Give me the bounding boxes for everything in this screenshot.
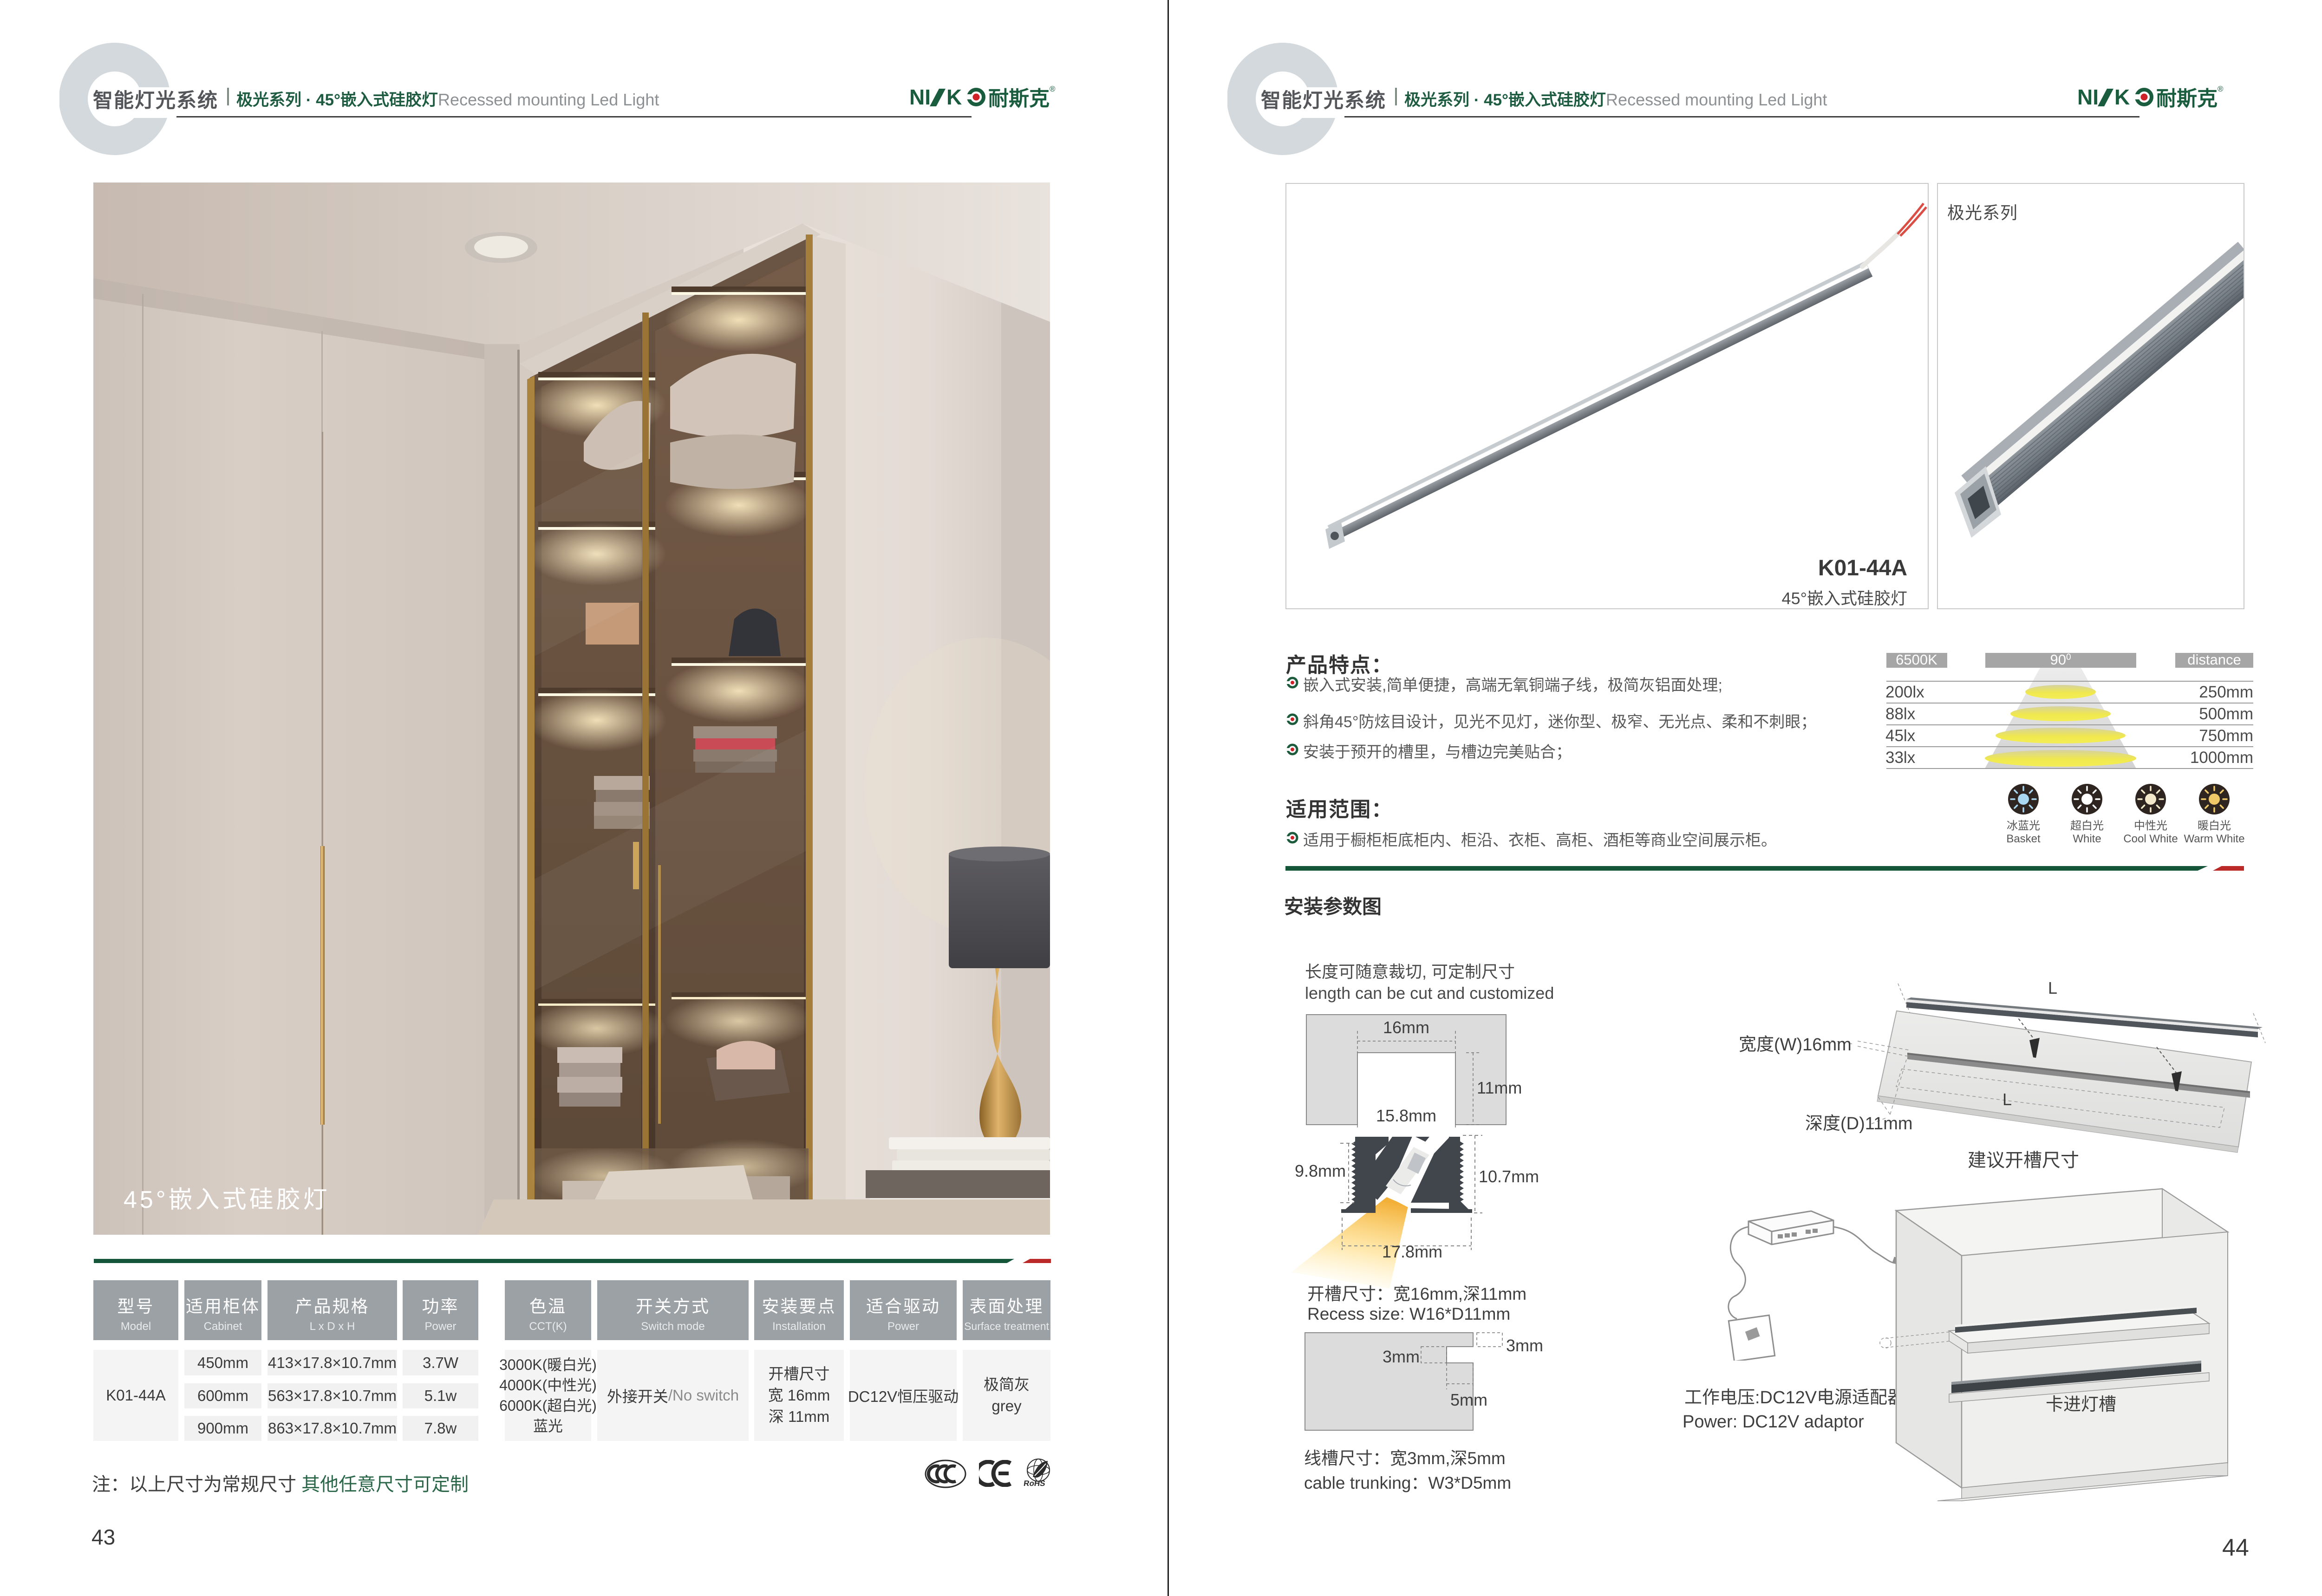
svg-text:33lx: 33lx xyxy=(1885,749,1916,767)
svg-text:L: L xyxy=(2048,978,2057,997)
svg-text:11mm: 11mm xyxy=(1477,1078,1522,1097)
svg-text:250mm: 250mm xyxy=(2199,683,2253,701)
svg-text:3mm: 3mm xyxy=(1383,1347,1420,1366)
svg-text:Basket: Basket xyxy=(2006,833,2041,845)
svg-text:卡进灯槽: 卡进灯槽 xyxy=(2046,1395,2116,1414)
svg-text:distance: distance xyxy=(2187,651,2241,668)
svg-text:超白光: 超白光 xyxy=(2070,820,2104,832)
svg-text:RoHS: RoHS xyxy=(1024,1479,1046,1488)
svg-text:中性光: 中性光 xyxy=(2134,820,2167,832)
svg-text:45lx: 45lx xyxy=(1885,727,1916,745)
svg-text:耐斯克: 耐斯克 xyxy=(988,87,1050,110)
svg-text:暖白光: 暖白光 xyxy=(2198,820,2231,832)
svg-text:200lx: 200lx xyxy=(1885,683,1924,701)
svg-text:耐斯克: 耐斯克 xyxy=(2156,87,2218,110)
svg-text:5mm: 5mm xyxy=(1450,1390,1487,1409)
svg-text:3mm: 3mm xyxy=(1506,1336,1543,1355)
svg-text:15.8mm: 15.8mm xyxy=(1376,1106,1436,1125)
svg-text:K: K xyxy=(946,85,962,109)
svg-text:NI: NI xyxy=(909,85,931,109)
svg-text:Cool White: Cool White xyxy=(2123,833,2178,845)
svg-text:L: L xyxy=(2002,1090,2012,1109)
svg-text:750mm: 750mm xyxy=(2199,727,2253,745)
svg-text:16mm: 16mm xyxy=(1383,1018,1429,1037)
svg-text:建议开槽尺寸: 建议开槽尺寸 xyxy=(1968,1150,2079,1171)
svg-text:®: ® xyxy=(1050,85,1056,93)
svg-text:6500K: 6500K xyxy=(1896,651,1937,668)
svg-text:1000mm: 1000mm xyxy=(2190,749,2253,767)
svg-text:NI: NI xyxy=(2077,85,2099,109)
svg-text:深度(D)11mm: 深度(D)11mm xyxy=(1805,1114,1913,1133)
svg-text:®: ® xyxy=(2218,85,2224,93)
svg-text:88lx: 88lx xyxy=(1885,705,1916,723)
svg-text:宽度(W)16mm: 宽度(W)16mm xyxy=(1739,1035,1852,1055)
svg-text:冰蓝光: 冰蓝光 xyxy=(2007,820,2040,832)
svg-text:9.8mm: 9.8mm xyxy=(1295,1161,1346,1180)
svg-text:500mm: 500mm xyxy=(2199,705,2253,723)
svg-text:17.8mm: 17.8mm xyxy=(1382,1242,1442,1261)
svg-text:Warm White: Warm White xyxy=(2184,833,2244,845)
svg-text:10.7mm: 10.7mm xyxy=(1479,1167,1539,1186)
svg-text:White: White xyxy=(2073,833,2101,845)
svg-text:K: K xyxy=(2114,85,2130,109)
